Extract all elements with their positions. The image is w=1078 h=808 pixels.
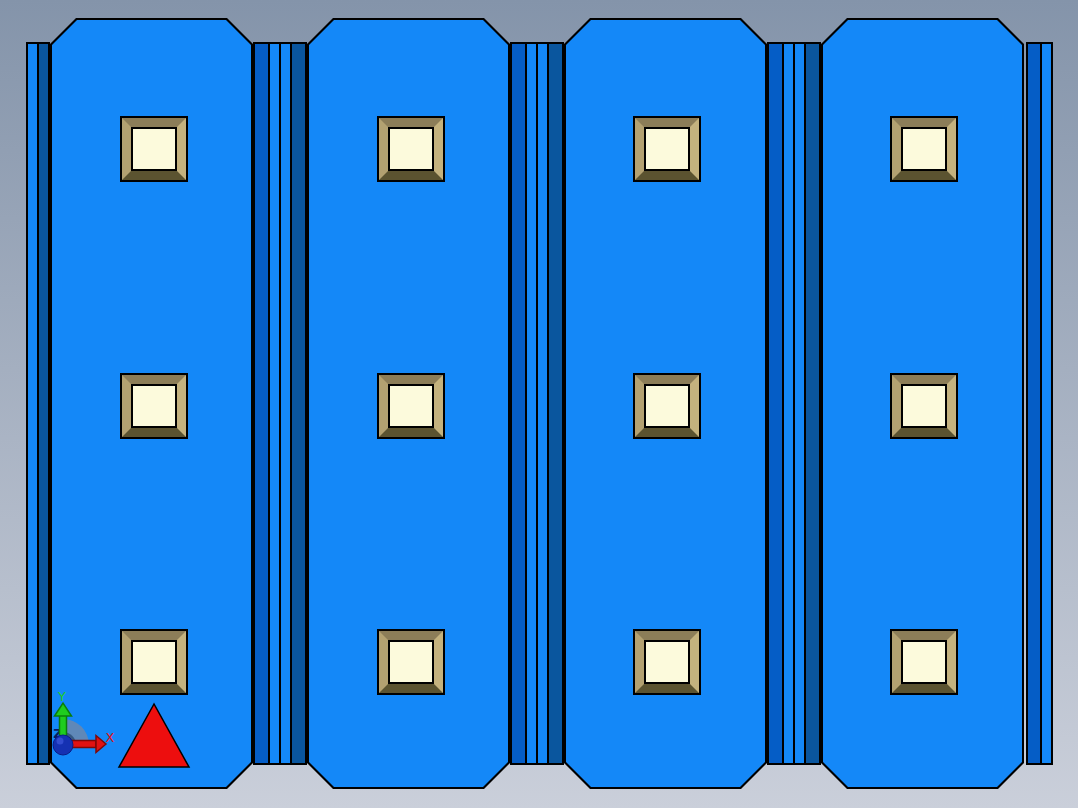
overlay-graphics: Z Y X — [0, 0, 1078, 808]
y-axis-arrowhead-icon — [55, 703, 72, 716]
z-axis-sphere-highlight — [57, 738, 64, 745]
y-axis-label: Y — [57, 689, 66, 704]
x-axis-arrow-shaft — [70, 741, 96, 748]
x-axis-label: X — [106, 730, 115, 745]
cad-viewport[interactable]: Z Y X — [0, 0, 1078, 808]
x-axis-arrowhead-icon — [96, 736, 106, 753]
sketch-triangle[interactable] — [119, 704, 189, 767]
z-axis-sphere-icon — [53, 735, 73, 755]
axis-triad: Z Y X — [53, 689, 115, 755]
